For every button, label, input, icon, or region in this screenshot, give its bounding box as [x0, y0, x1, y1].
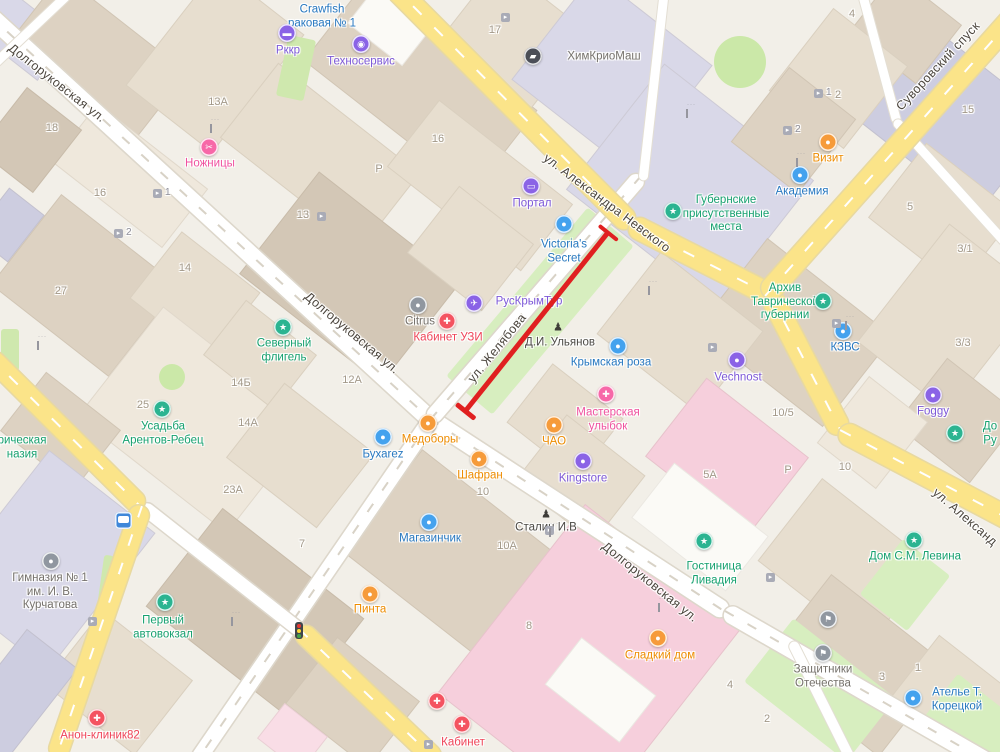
map-canvas[interactable]: Долгоруковская ул.Долгоруковская ул.Долг… — [0, 0, 1000, 752]
measure-layer — [0, 0, 1000, 752]
measured-street-segment-highlight — [463, 230, 610, 412]
